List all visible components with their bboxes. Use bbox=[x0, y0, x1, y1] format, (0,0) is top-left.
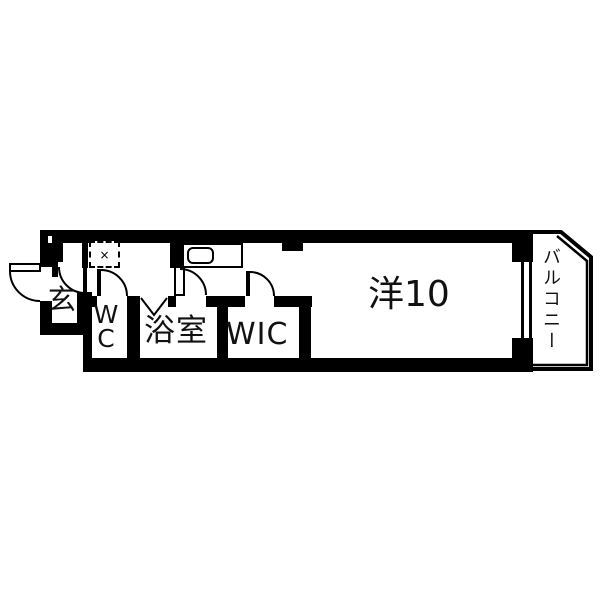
wic-door-arc bbox=[250, 272, 274, 296]
bathroom-label: 浴室 bbox=[144, 316, 208, 347]
wc-door-leaf bbox=[97, 269, 101, 296]
genkan-label: 玄 bbox=[48, 286, 76, 314]
wc-door-arc bbox=[101, 270, 127, 296]
floorplan-canvas: × 玄 W C 浴室 WIC 洋10 バルコニー bbox=[0, 0, 600, 600]
linework-layer bbox=[0, 0, 600, 600]
wic-label-text: WIC bbox=[226, 320, 288, 350]
washroom-door-leaf bbox=[175, 267, 184, 295]
entrance-door-arc bbox=[10, 271, 40, 301]
entrance-door-leaf bbox=[10, 264, 40, 271]
wc-label-line2: C bbox=[92, 327, 120, 351]
western-room-label: 洋10 bbox=[368, 277, 450, 313]
balcony-label: バルコニー bbox=[541, 247, 559, 352]
wic-door-leaf bbox=[246, 271, 250, 296]
genkan-door-leaf bbox=[83, 266, 87, 293]
wc-label: W C bbox=[92, 303, 120, 351]
